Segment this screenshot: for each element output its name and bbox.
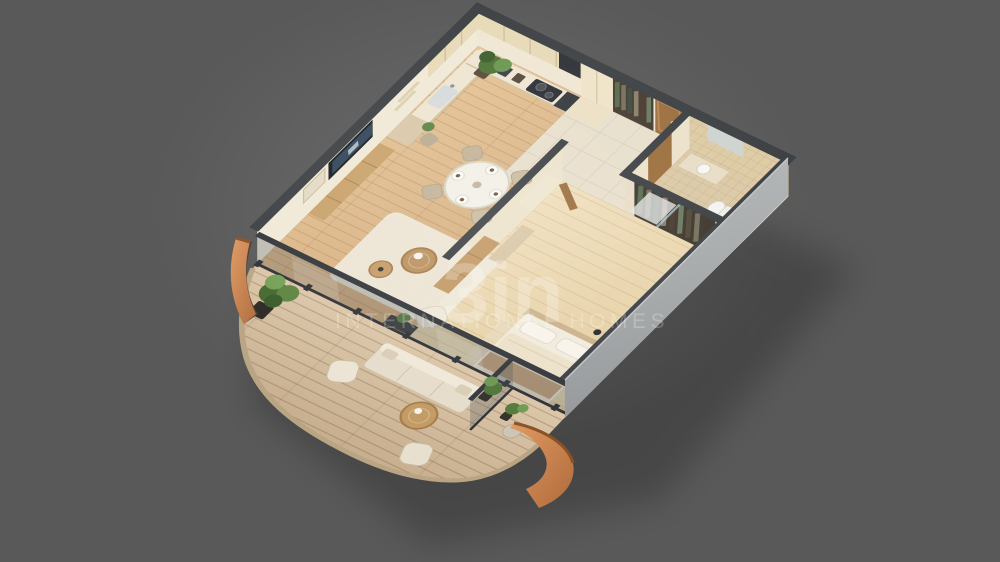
watermark-title: INTERNATIONAL HOMES [335, 310, 669, 333]
floorplan-render: 3in INTERNATIONAL HOMES [0, 0, 1000, 562]
floorplan-svg: 3in INTERNATIONAL HOMES [0, 0, 1000, 562]
